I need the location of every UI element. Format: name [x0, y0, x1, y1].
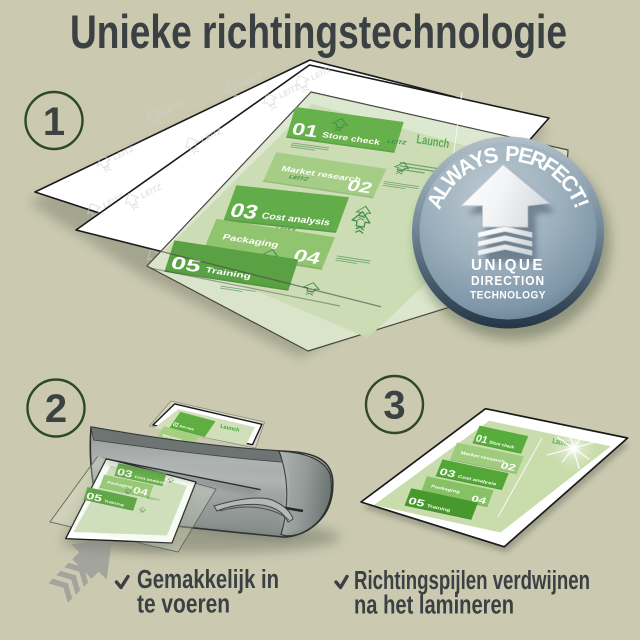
svg-text:2: 2 — [45, 387, 67, 431]
svg-text:1: 1 — [43, 100, 65, 144]
svg-text:DIRECTION: DIRECTION — [471, 274, 545, 288]
svg-text:3: 3 — [383, 384, 405, 428]
svg-text:Unieke richtingstechnologie: Unieke richtingstechnologie — [70, 5, 567, 58]
svg-text:TECHNOLOGY: TECHNOLOGY — [470, 290, 546, 302]
svg-text:na het lamineren: na het lamineren — [354, 592, 514, 620]
svg-text:UNIQUE: UNIQUE — [471, 257, 545, 274]
svg-text:te voeren: te voeren — [137, 591, 230, 619]
